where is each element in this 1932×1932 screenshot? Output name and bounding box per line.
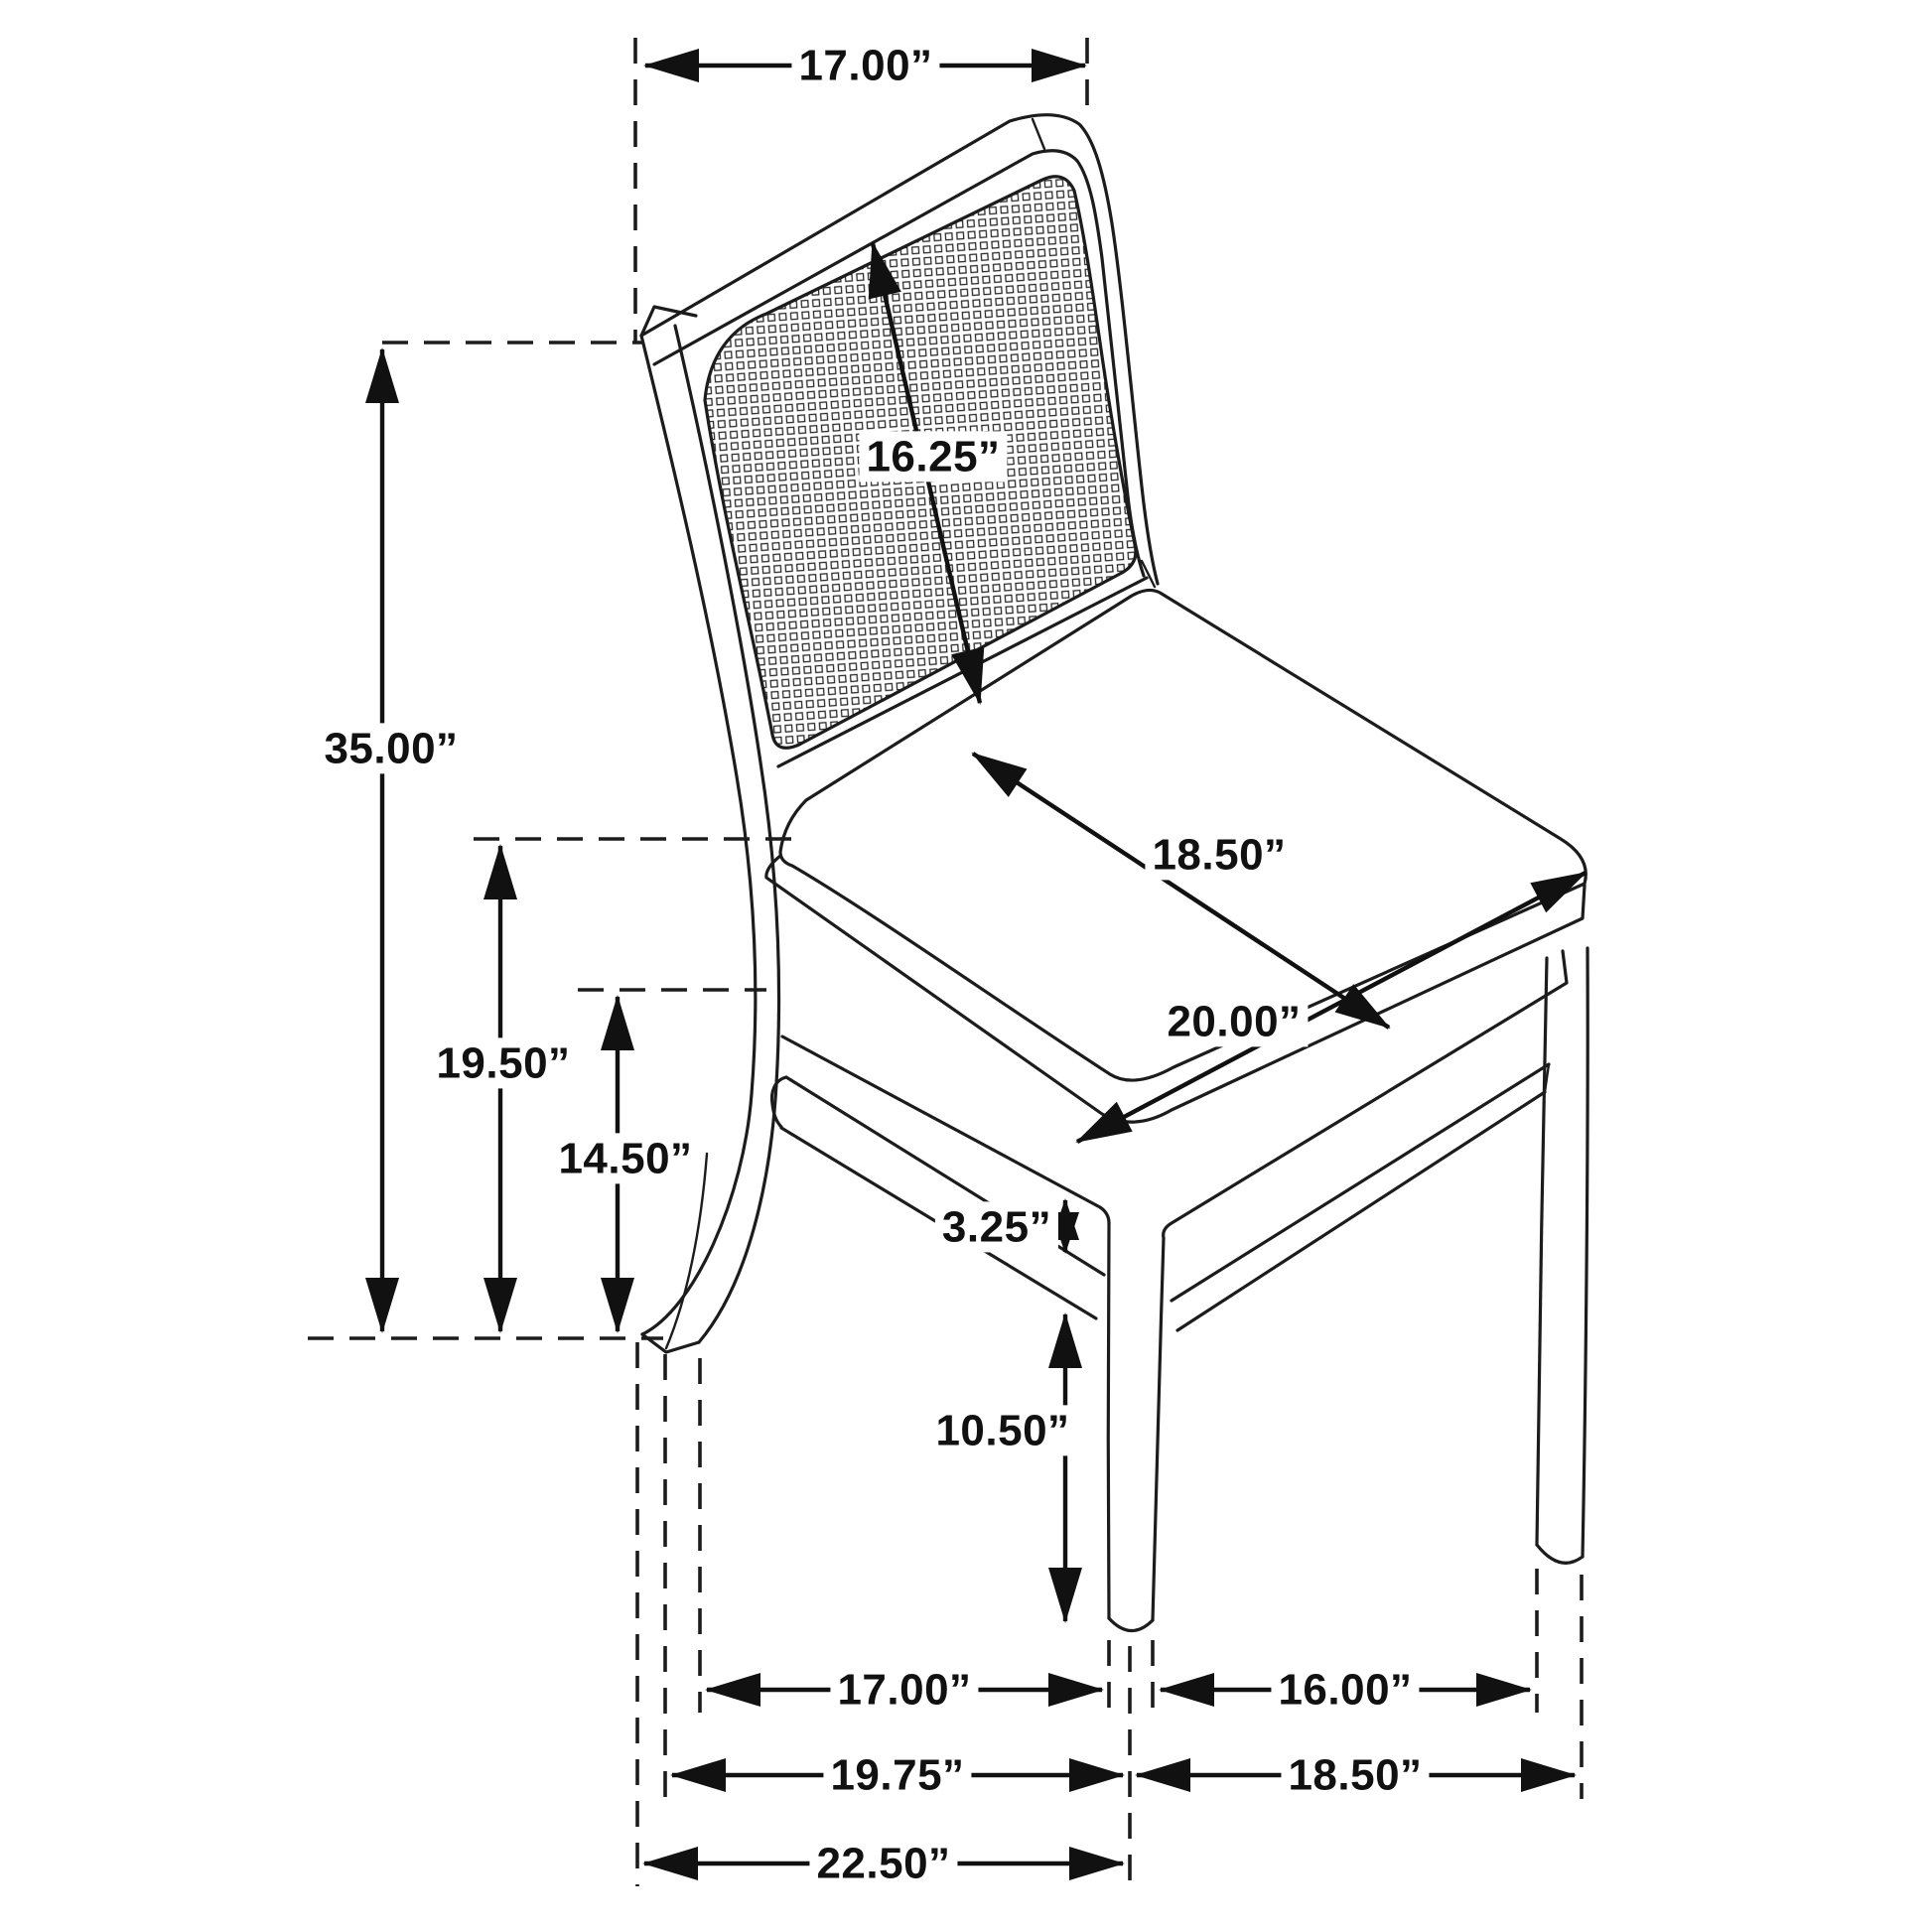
frame-and-legs [772,948,1588,1631]
dim-seat-depth-label: 18.50” [1145,829,1293,880]
dim-stretcher-height-label: 10.50” [928,1405,1076,1455]
dim-overall-depth-label: 22.50” [809,1838,957,1888]
chair-dimension-diagram: 17.00” 16.25” 35.00” 19.50” 14.50” 18.50… [0,0,1932,1932]
front-leg-foot [1109,1618,1153,1631]
dim-seat-depth-arrow [973,754,1389,1028]
dim-width-outer-label: 18.50” [1281,1749,1429,1800]
right-stretcher-bottom-edge [1177,1092,1545,1330]
rear-right-leg-right-edge [1583,948,1587,1557]
dim-rail-gap-label: 3.25” [935,1201,1058,1252]
backrest [641,115,1158,1352]
dim-depth-inner-label: 17.00” [830,1664,978,1715]
front-leg-left-edge [1108,1223,1109,1618]
seat-cushion-seam [766,856,1585,1122]
dim-seat-width-arrow [1077,873,1586,1142]
right-apron-bottom-edge [1164,951,1567,1238]
left-apron-bottom-edge [782,1036,1109,1223]
front-leg-right-edge [1153,1238,1164,1620]
dim-apron-height-label: 14.50” [551,1133,699,1183]
back-frame-corner-seam [1033,119,1044,149]
dim-seat-height-label: 19.50” [429,1037,577,1088]
dim-seat-width-label: 20.00” [1160,996,1308,1046]
dim-back-height-label: 16.25” [859,431,1007,482]
right-stretcher-top-edge [1172,1064,1549,1301]
dim-overall-height-label: 35.00” [317,723,465,773]
dim-depth-outer-label: 19.75” [823,1749,971,1800]
dim-back-width-label: 17.00” [791,40,939,90]
chair-line-art [0,0,1932,1932]
rear-right-leg-left-edge [1537,958,1547,1545]
dim-width-inner-label: 16.00” [1271,1664,1419,1715]
rear-right-leg-foot [1537,1545,1583,1563]
